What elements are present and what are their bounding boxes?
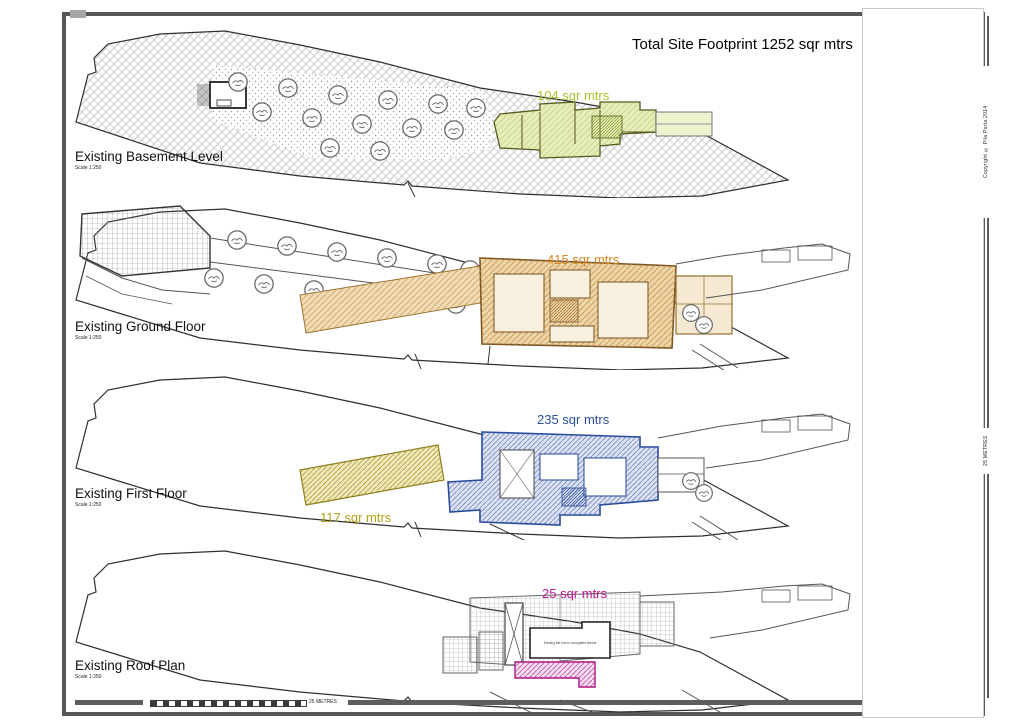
scale-bar-ruler	[150, 700, 307, 707]
first-plan-label: Existing First Floor Scale 1:250	[75, 487, 187, 508]
scale-bar-segment	[75, 700, 143, 705]
basement-plan-label: Existing Basement Level Scale 1:250	[75, 150, 223, 171]
plan-scale: Scale 1:250	[75, 336, 206, 341]
sheet-border-frame	[62, 12, 985, 716]
plan-name: Existing Basement Level	[75, 150, 223, 164]
plan-name: Existing Ground Floor	[75, 320, 206, 334]
copyright-text: Copyright © Pila Porta 2014	[983, 66, 993, 218]
plan-name: Existing First Floor	[75, 487, 187, 501]
roof-plan-label: Existing Roof Plan Scale 1:250	[75, 659, 185, 680]
title-block-panel	[862, 8, 984, 718]
plan-scale: Scale 1:250	[75, 503, 187, 508]
frame-notch	[70, 10, 86, 18]
vertical-scale-bar-label: 25 METRES	[983, 428, 993, 474]
plan-scale: Scale 1:250	[75, 166, 223, 171]
page-title: Total Site Footprint 1252 sqr mtrs	[632, 36, 853, 53]
scale-bar-label: 25 METRES	[309, 699, 337, 705]
ground-plan-label: Existing Ground Floor Scale 1:250	[75, 320, 206, 341]
plan-scale: Scale 1:250	[75, 675, 185, 680]
plan-name: Existing Roof Plan	[75, 659, 185, 673]
drawing-sheet: 104 sqr mtrs	[0, 0, 1024, 724]
